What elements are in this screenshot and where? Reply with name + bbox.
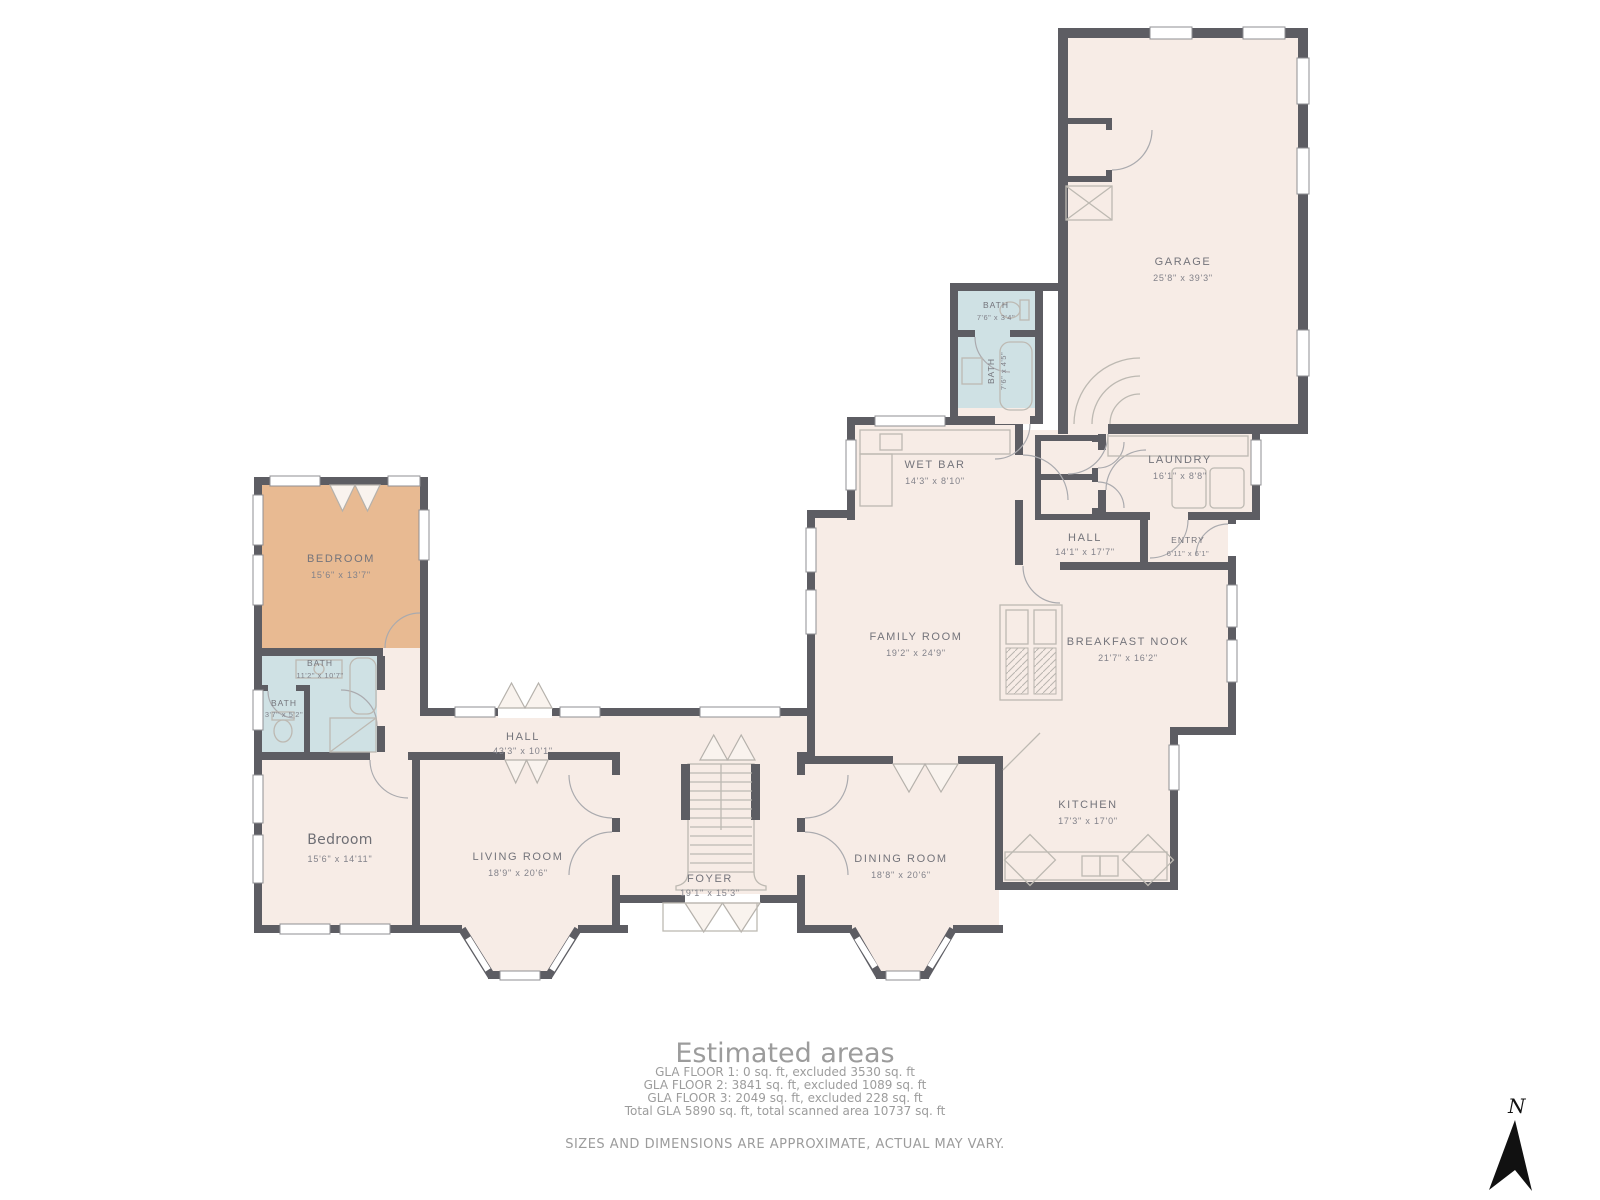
disclaimer: SIZES AND DIMENSIONS ARE APPROXIMATE, AC… xyxy=(565,1137,1005,1152)
room-dims-lower-bedroom: 15'6" x 14'11" xyxy=(308,854,373,864)
room-label-upper-hall: HALL xyxy=(1068,532,1102,544)
room-dims-breakfast-nook: 21'7" x 16'2" xyxy=(1098,653,1158,663)
room-dims-living-room: 18'9" x 20'6" xyxy=(488,868,548,878)
bath-lower-floor xyxy=(954,334,1039,408)
gla-floor-3: GLA FLOOR 3: 2049 sq. ft, excluded 228 s… xyxy=(647,1091,922,1105)
room-dims-foyer: 19'1" x 15'3" xyxy=(680,888,740,898)
room-label-foyer: FOYER xyxy=(687,873,733,885)
room-dims-small-bath: 3'7" x 5'2" xyxy=(265,710,303,719)
room-label-small-bath: BATH xyxy=(271,698,297,708)
room-label-laundry: LAUNDRY xyxy=(1148,454,1212,466)
room-dims-bath-upper: 7'6" x 3'4" xyxy=(977,313,1015,322)
floor-plan-page: GARAGE 25'8" x 39'3" BATH 7'6" x 3'4" BA… xyxy=(0,0,1600,1200)
gla-floor-2: GLA FLOOR 2: 3841 sq. ft, excluded 1089 … xyxy=(644,1078,927,1092)
room-label-garage: GARAGE xyxy=(1155,256,1212,268)
room-dims-main-bath: 11'2" x 10'7" xyxy=(296,671,343,680)
room-dims-lower-hall: 43'3" x 10'1" xyxy=(493,746,553,756)
room-dims-upper-hall: 14'1" x 17'7" xyxy=(1055,547,1115,557)
svg-text:BATH: BATH xyxy=(986,358,996,384)
room-label-kitchen: KITCHEN xyxy=(1058,799,1117,811)
estimated-areas: Estimated areas GLA FLOOR 1: 0 sq. ft, e… xyxy=(565,1038,1005,1152)
room-dims-family-room: 19'2" x 24'9" xyxy=(886,648,946,658)
room-dims-entry: 6'11" x 6'1" xyxy=(1167,549,1209,558)
room-dims-wet-bar: 14'3" x 8'10" xyxy=(905,476,965,486)
bath-upper-floor xyxy=(954,287,1039,334)
room-label-lower-hall: HALL xyxy=(506,731,540,743)
room-label-upper-bedroom: BEDROOM xyxy=(307,553,375,565)
room-dims-kitchen: 17'3" x 17'0" xyxy=(1058,816,1118,826)
room-label-main-bath: BATH xyxy=(307,658,333,668)
gla-total: Total GLA 5890 sq. ft, total scanned are… xyxy=(624,1104,946,1118)
room-label-bath-upper: BATH xyxy=(983,300,1009,310)
gla-floor-1: GLA FLOOR 1: 0 sq. ft, excluded 3530 sq.… xyxy=(655,1065,915,1079)
room-label-living-room: LIVING ROOM xyxy=(473,851,564,863)
room-label-breakfast-nook: BREAKFAST NOOK xyxy=(1067,636,1189,648)
floor-plan: GARAGE 25'8" x 39'3" BATH 7'6" x 3'4" BA… xyxy=(0,0,1600,1200)
dining-room-floor xyxy=(803,760,999,930)
svg-text:7'6" x 4'5": 7'6" x 4'5" xyxy=(999,352,1008,390)
compass: N xyxy=(1489,1094,1532,1191)
room-label-lower-bedroom: Bedroom xyxy=(307,832,372,848)
garage-floor xyxy=(1063,33,1303,429)
north-label: N xyxy=(1507,1094,1527,1118)
north-arrow-icon xyxy=(1489,1120,1532,1191)
room-label-wet-bar: WET BAR xyxy=(904,459,965,471)
room-dims-upper-bedroom: 15'6" x 13'7" xyxy=(311,570,371,580)
room-dims-dining-room: 18'8" x 20'6" xyxy=(871,870,931,880)
room-label-entry: ENTRY xyxy=(1171,535,1205,545)
room-label-dining-room: DINING ROOM xyxy=(854,853,947,865)
living-room-floor xyxy=(416,756,620,933)
room-dims-laundry: 16'1" x 8'8" xyxy=(1153,471,1207,481)
room-dims-garage: 25'8" x 39'3" xyxy=(1153,273,1213,283)
room-label-family-room: FAMILY ROOM xyxy=(870,631,963,643)
